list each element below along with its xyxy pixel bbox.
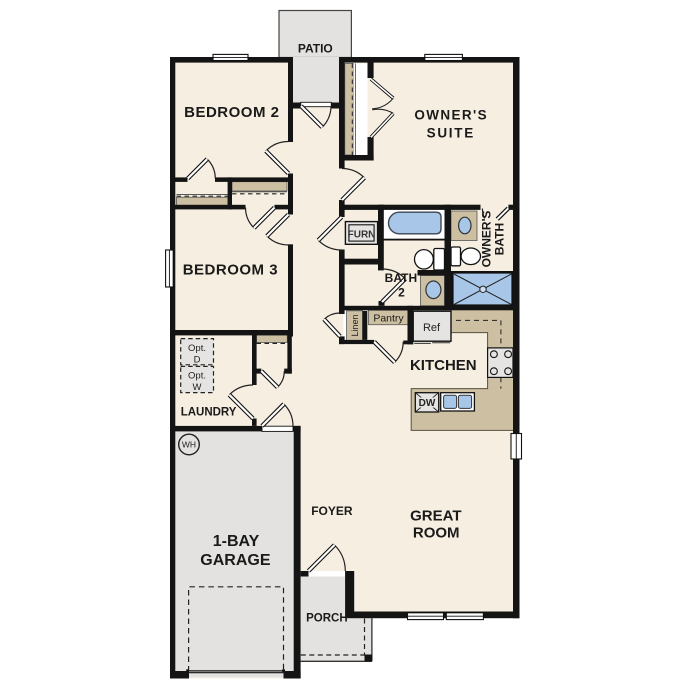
svg-text:KITCHEN: KITCHEN xyxy=(410,357,477,374)
svg-text:GARAGE: GARAGE xyxy=(200,552,271,569)
svg-text:Opt.: Opt. xyxy=(188,343,206,354)
svg-text:BATH: BATH xyxy=(385,271,417,285)
svg-text:FOYER: FOYER xyxy=(311,504,353,518)
svg-text:Ref: Ref xyxy=(423,322,441,334)
svg-text:BEDROOM 2: BEDROOM 2 xyxy=(184,104,279,121)
svg-text:OWNER'S: OWNER'S xyxy=(414,108,488,123)
svg-text:ROOM: ROOM xyxy=(413,524,460,541)
svg-text:Opt.: Opt. xyxy=(188,371,206,382)
svg-text:WH: WH xyxy=(182,440,196,450)
svg-text:BATH: BATH xyxy=(493,223,507,255)
svg-text:BEDROOM 3: BEDROOM 3 xyxy=(183,262,278,279)
svg-text:D: D xyxy=(194,355,201,366)
svg-text:SUITE: SUITE xyxy=(427,126,475,141)
svg-text:OWNER'S: OWNER'S xyxy=(480,211,494,268)
svg-text:FURN: FURN xyxy=(348,229,376,240)
svg-text:PATIO: PATIO xyxy=(298,42,333,56)
svg-text:DW: DW xyxy=(419,398,436,409)
svg-text:Linen: Linen xyxy=(350,314,360,336)
svg-text:PORCH: PORCH xyxy=(306,613,348,625)
svg-text:LAUNDRY: LAUNDRY xyxy=(181,407,237,419)
svg-text:W: W xyxy=(193,382,202,393)
svg-text:GREAT: GREAT xyxy=(410,508,461,525)
svg-text:2: 2 xyxy=(398,285,405,299)
svg-text:Pantry: Pantry xyxy=(373,312,404,324)
svg-text:1-BAY: 1-BAY xyxy=(213,533,260,550)
